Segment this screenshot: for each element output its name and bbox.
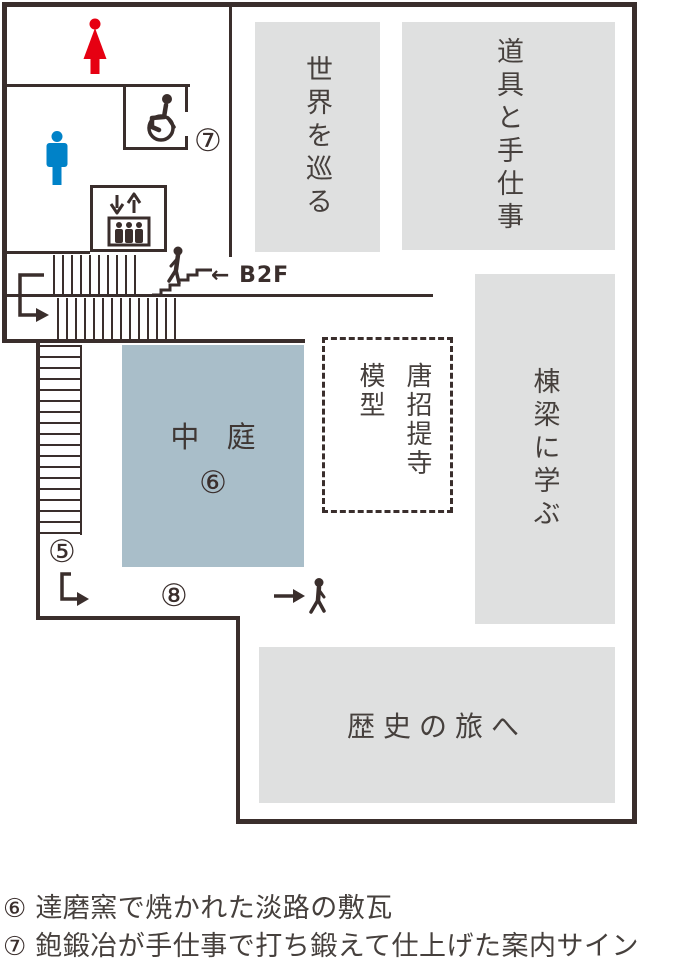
wall-restroom-right [229,2,232,257]
legend-item-6: ⑥達磨窯で焼かれた淡路の敷瓦 [3,886,393,925]
stairs-upper-flight [53,255,141,294]
wall-right [632,2,637,824]
courtyard: 中 庭 ⑥ [122,345,304,567]
wall-bottomleft-horizontal [36,616,238,620]
legend-text: 達磨窯で焼かれた淡路の敷瓦 [35,893,393,923]
marker-7: ⑦ [194,126,222,157]
room-label: 歴史の旅へ [347,705,527,745]
stairs-person-icon [150,245,214,299]
stairs-left-rail [80,345,82,535]
room-learn-from-master: 棟梁に学ぶ [475,274,615,624]
floor-plan: ← B2F ⑦ 世界を巡る 道具と手仕事 棟梁に学ぶ 歴史の旅へ 中 庭 ⑥ 唐… [0,0,684,964]
stairs-lower-flight [57,298,179,339]
wall-mid-vertical [236,616,240,819]
legend-number: ⑦ [3,932,26,962]
courtyard-number: ⑥ [199,468,227,499]
legend-number: ⑥ [3,894,26,924]
walking-person-icon [306,577,332,617]
model-type: 模型 [352,362,389,478]
legend-text: 鉋鍛冶が手仕事で打ち鍛えて仕上げた案内サイン [35,931,639,961]
room-world-tour: 世界を巡る [255,22,380,252]
legend-item-7: ⑦鉋鍛冶が手仕事で打ち鍛えて仕上げた案内サイン [3,924,639,963]
l-arrow-icon [55,571,95,607]
marker-8: ⑧ [160,581,188,612]
marker-5: ⑤ [48,537,76,568]
right-arrow-icon [272,585,306,607]
room-journey-history: 歴史の旅へ [259,647,615,803]
women-restroom-icon [80,17,110,75]
stairs-left-vertical [40,345,82,535]
wheelchair-stall [123,84,188,150]
room-label: 世界を巡る [298,55,337,220]
room-tools-handwork: 道具と手仕事 [402,22,615,250]
wall-corridor-bottom [2,294,433,297]
model-name: 唐招提寺 [399,362,436,478]
wall-top [2,2,637,7]
courtyard-label: 中 庭 [160,414,265,456]
wheelchair-icon [131,91,181,143]
u-turn-arrow-icon [12,271,56,323]
elevator-icon [106,192,156,248]
men-restroom-icon [44,130,70,186]
wall-left-upper [2,2,7,343]
elevator-box [90,185,167,252]
wall-bottom [236,819,637,824]
b2f-direction-label: ← B2F [211,263,289,288]
room-label: 棟梁に学ぶ [526,367,565,532]
wall-mid-horizontal [2,339,305,343]
wall-corridor-top [2,251,90,254]
room-label: 道具と手仕事 [489,37,528,235]
model-exhibit-box: 唐招提寺 模型 [322,337,453,513]
